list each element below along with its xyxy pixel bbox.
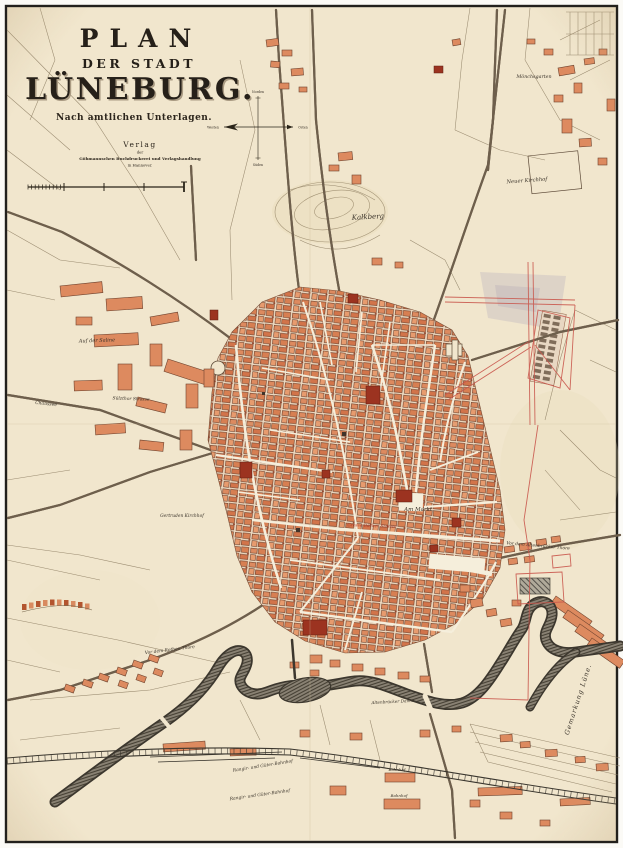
scanned-map-page: Westen Osten Norden Süden PLAN DER STADT…	[0, 0, 623, 848]
map-canvas: Westen Osten Norden Süden PLAN DER STADT…	[0, 0, 623, 848]
vignette-overlay	[7, 7, 616, 841]
